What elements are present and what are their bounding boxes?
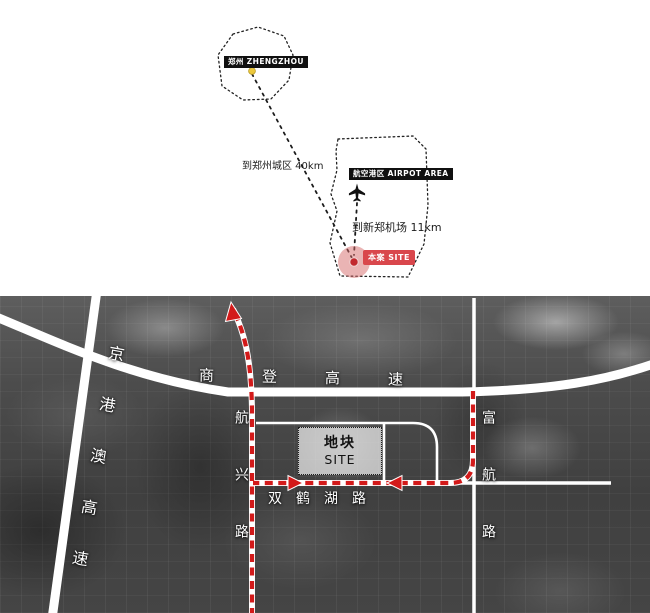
road-label-fuhang-road: 富航路	[478, 410, 498, 581]
satellite-map: 地块 SITE 京港澳高速 商登高速 航兴路 双鹤湖路 富航路	[0, 296, 650, 613]
locator-diagram: 郑州 ZHENGZHOU 航空港区 AIRPOT AREA 到郑州城区 40km…	[0, 0, 650, 296]
road-label-shuanghehu-road: 双鹤湖路	[268, 488, 380, 508]
site-location-figure: 郑州 ZHENGZHOU 航空港区 AIRPOT AREA 到郑州城区 40km…	[0, 0, 650, 613]
route-arrow-west-toward-site	[387, 476, 402, 491]
site-parcel-subtitle: SITE	[324, 452, 355, 467]
zhengzhou-distance-text: 到郑州城区 40km	[242, 157, 323, 172]
site-parcel-rect: 地块 SITE	[298, 427, 382, 475]
zhengzhou-label: 郑州 ZHENGZHOU	[224, 56, 308, 68]
airport-area-label: 航空港区 AIRPOT AREA	[349, 168, 453, 180]
route-arrow-north	[226, 302, 242, 322]
airplane-icon	[349, 183, 365, 201]
airport-distance-text: 到新郑机场 11km	[352, 219, 442, 235]
site-tag: 本案 SITE	[363, 250, 415, 265]
site-center-dot	[350, 258, 358, 266]
road-label-hangxing-road: 航兴路	[231, 410, 251, 581]
locator-diagram-shapes	[0, 0, 650, 296]
site-parcel-title: 地块	[324, 435, 356, 452]
zhengzhou-city-dot	[249, 68, 256, 75]
